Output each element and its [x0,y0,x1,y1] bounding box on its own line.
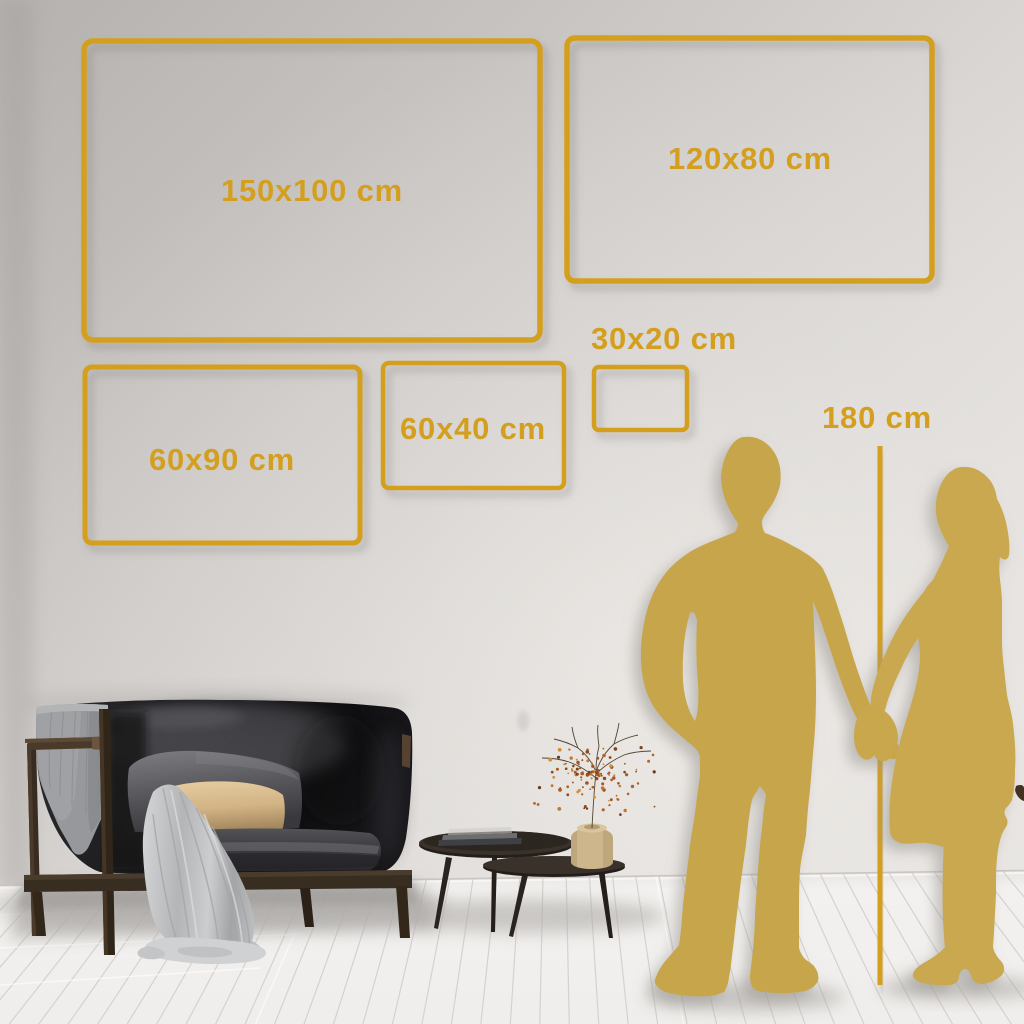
svg-text:30x20 cm: 30x20 cm [591,321,737,356]
svg-text:180 cm: 180 cm [822,400,932,435]
svg-text:60x40 cm: 60x40 cm [400,411,546,446]
svg-text:60x90 cm: 60x90 cm [149,442,295,477]
svg-text:120x80 cm: 120x80 cm [668,141,832,176]
svg-text:150x100 cm: 150x100 cm [221,173,403,208]
